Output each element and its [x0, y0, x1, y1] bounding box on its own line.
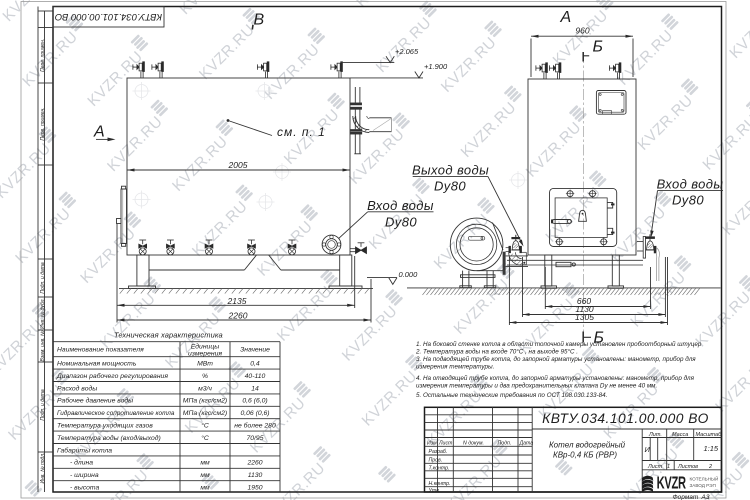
svg-text:не более 280: не более 280 — [234, 422, 276, 430]
svg-text:ЗАВОД РЭП: ЗАВОД РЭП — [690, 483, 716, 488]
svg-text:Наименование показателя: Наименование показателя — [57, 347, 144, 354]
svg-text:KVZR: KVZR — [657, 473, 687, 493]
svg-text:1130: 1130 — [248, 472, 263, 479]
svg-text:1305: 1305 — [575, 312, 594, 322]
svg-text:мм: мм — [200, 460, 210, 467]
svg-text:0,06 (0,6): 0,06 (0,6) — [240, 410, 269, 417]
svg-text:1:15: 1:15 — [704, 444, 719, 453]
svg-text:N докум.: N докум. — [463, 440, 484, 446]
svg-text:измерения температуры и два: измерения температуры и два предохраните… — [416, 382, 657, 390]
svg-text:Н.контр.: Н.контр. — [429, 481, 451, 487]
svg-text:см. п. 1: см. п. 1 — [277, 125, 326, 139]
svg-text:Подп.: Подп. — [498, 440, 512, 446]
svg-text:КВТУ.034.101.00.000 ВО: КВТУ.034.101.00.000 ВО — [542, 411, 709, 426]
svg-text:2: 2 — [708, 464, 712, 470]
svg-text:2005: 2005 — [228, 160, 248, 170]
svg-text:+2.065: +2.065 — [395, 47, 419, 56]
svg-text:Котел водогрейный: Котел водогрейный — [549, 441, 626, 450]
svg-text:2260: 2260 — [246, 460, 262, 467]
svg-text:Вход воды: Вход воды — [657, 177, 724, 192]
svg-text:Т.контр.: Т.контр. — [429, 465, 450, 471]
svg-text:Гидравлическое сопротивление к: Гидравлическое сопротивление котла — [57, 409, 175, 417]
svg-text:А: А — [93, 124, 105, 141]
svg-text:Dу80: Dу80 — [434, 179, 466, 194]
svg-text:Инв. № подл.: Инв. № подл. — [40, 452, 46, 483]
svg-text:Рабочее давление воды: Рабочее давление воды — [57, 397, 133, 405]
svg-text:м3/ч: м3/ч — [198, 385, 212, 392]
svg-text:%: % — [202, 373, 208, 380]
svg-text:Техническая характеристика: Техническая характеристика — [114, 331, 223, 340]
svg-text:Масштаб: Масштаб — [696, 432, 723, 438]
svg-text:Подп. и дата: Подп. и дата — [40, 389, 46, 421]
svg-text:°С: °С — [201, 434, 209, 442]
svg-text:измерения температуры.: измерения температуры. — [416, 364, 494, 371]
svg-text:2260: 2260 — [228, 310, 248, 320]
svg-text:- ширина: - ширина — [70, 472, 99, 479]
svg-text:0.000: 0.000 — [399, 270, 419, 279]
svg-text:14: 14 — [251, 385, 259, 392]
svg-text:Подп. и дата: Подп. и дата — [40, 262, 46, 294]
svg-text:КВТУ.034.101.00.000 ВО: КВТУ.034.101.00.000 ВО — [54, 11, 162, 22]
svg-text:0,6 (6,0): 0,6 (6,0) — [242, 398, 267, 405]
svg-text:КОТЕЛЬНЫЙ: КОТЕЛЬНЫЙ — [690, 475, 719, 482]
svg-text:- длина: - длина — [70, 459, 93, 467]
svg-text:Лист: Лист — [647, 464, 663, 470]
svg-text:В: В — [254, 12, 265, 29]
svg-text:70/95: 70/95 — [246, 435, 263, 442]
svg-text:А3: А3 — [701, 494, 710, 500]
svg-text:Выход воды: Выход воды — [412, 163, 489, 178]
svg-text:Лит.: Лит. — [648, 432, 662, 438]
svg-text:3. На подводящей трубе кот: 3. На подводящей трубе котла, до запорно… — [416, 355, 696, 363]
svg-text:КВр-0,4 КБ (РВР): КВр-0,4 КБ (РВР) — [553, 451, 617, 460]
svg-text:Расход воды: Расход воды — [57, 384, 97, 392]
svg-text:мм: мм — [200, 485, 210, 492]
svg-text:2135: 2135 — [227, 296, 247, 306]
svg-text:2. Температура воды на вхо: 2. Температура воды на входе 70°С , на в… — [415, 347, 578, 355]
svg-text:Значение: Значение — [240, 347, 270, 354]
svg-text:Взам. инв. №: Взам. инв. № — [40, 330, 46, 362]
svg-text:Температура воды (вход/выход): Температура воды (вход/выход) — [57, 434, 161, 442]
svg-text:Dу80: Dу80 — [672, 193, 704, 208]
svg-text:Инв. № дубл.: Инв. № дубл. — [40, 298, 46, 329]
svg-text:МПа (кгс/см2): МПа (кгс/см2) — [183, 398, 227, 405]
svg-text:1950: 1950 — [247, 485, 262, 492]
svg-text:Dу80: Dу80 — [385, 215, 417, 230]
svg-text:Перв. примен.: Перв. примен. — [40, 107, 46, 140]
svg-text:40-110: 40-110 — [245, 373, 266, 380]
svg-text:МПа (кгс/см2): МПа (кгс/см2) — [183, 410, 227, 417]
svg-text:Масса: Масса — [672, 432, 688, 438]
svg-text:Вход воды: Вход воды — [367, 198, 434, 213]
svg-text:Дата: Дата — [519, 440, 534, 446]
svg-text:°С: °С — [201, 422, 209, 430]
svg-text:Лист: Лист — [438, 440, 453, 446]
svg-text:Перв. примен.: Перв. примен. — [40, 39, 46, 72]
svg-text:Формат: Формат — [673, 494, 699, 500]
svg-text:Разраб.: Разраб. — [429, 449, 448, 455]
svg-text:- высота: - высота — [70, 485, 99, 492]
svg-text:Температура уходящих газов: Температура уходящих газов — [57, 422, 153, 430]
svg-text:Пров.: Пров. — [429, 458, 443, 464]
svg-text:А: А — [560, 9, 572, 26]
svg-text:1. На боковой стенке котла: 1. На боковой стенке котла в области топ… — [416, 340, 702, 348]
svg-text:Номинальная мощность: Номинальная мощность — [57, 361, 137, 368]
svg-text:измерения: измерения — [188, 350, 222, 357]
svg-text:мм: мм — [200, 472, 210, 479]
svg-text:5. Остальные технические тр: 5. Остальные технические требования по О… — [416, 391, 607, 399]
svg-text:960: 960 — [575, 26, 589, 36]
svg-text:4. На отводящей трубе котл: 4. На отводящей трубе котла, до запорной… — [416, 374, 695, 382]
svg-text:Изм: Изм — [427, 440, 437, 446]
svg-text:Листов: Листов — [677, 464, 698, 470]
svg-text:Единицы: Единицы — [191, 342, 219, 350]
svg-text:Габариты котла: Габариты котла — [57, 446, 112, 454]
svg-text:0,4: 0,4 — [250, 361, 260, 368]
svg-text:Утв.: Утв. — [429, 488, 441, 494]
svg-text:1: 1 — [667, 464, 670, 470]
svg-text:+1.900: +1.900 — [424, 62, 448, 71]
svg-text:Б: Б — [593, 39, 603, 56]
svg-text:Диапазон рабочего регулировани: Диапазон рабочего регулирования — [56, 372, 168, 380]
svg-text:И: И — [645, 445, 651, 454]
svg-text:МВт: МВт — [197, 361, 213, 368]
